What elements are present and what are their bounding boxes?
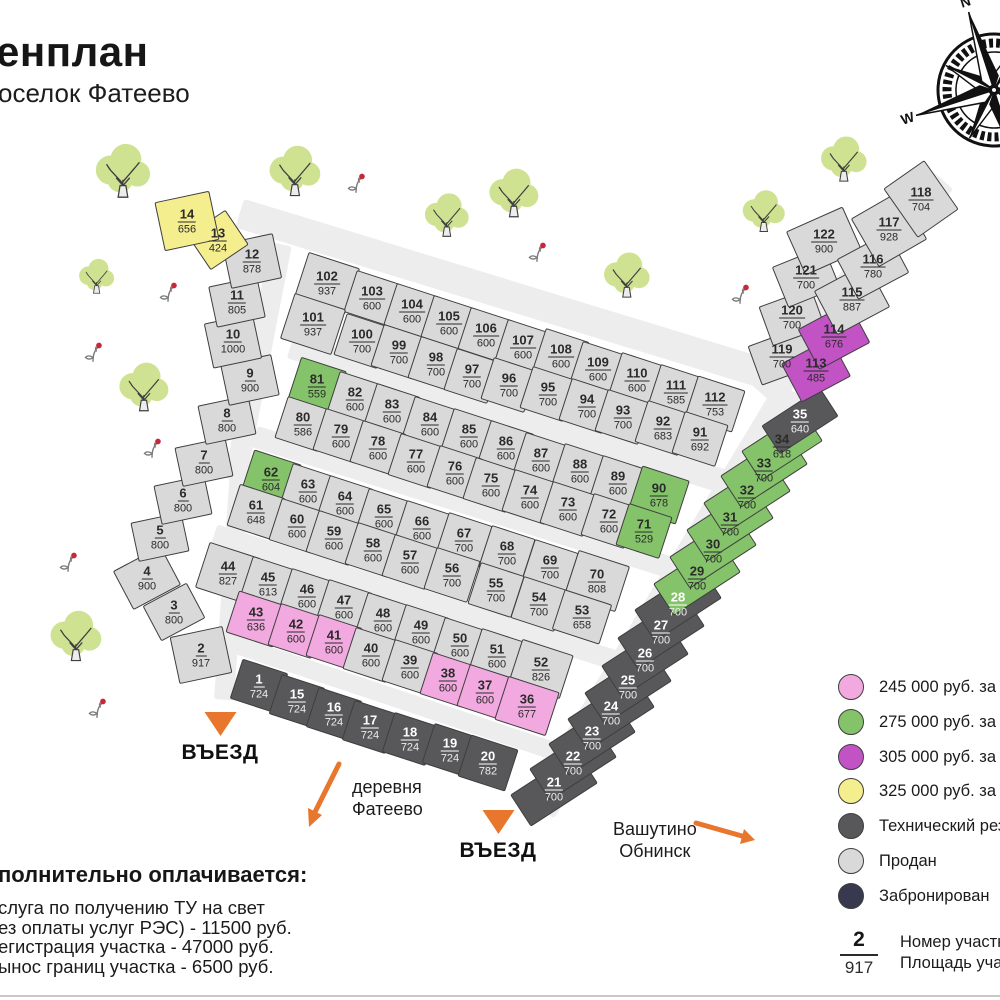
plot-6-label: 6800 xyxy=(174,486,192,515)
entrance-arrow-icon xyxy=(204,712,236,736)
plot-20-label: 20782 xyxy=(479,749,497,778)
plot-49-label: 49600 xyxy=(412,618,430,647)
entrance-1: ВЪЕЗД xyxy=(181,712,258,765)
plot-24-label: 24700 xyxy=(602,699,620,728)
tree-icon xyxy=(265,143,323,201)
plot-36-label: 36677 xyxy=(518,692,536,721)
plot-52-label: 52826 xyxy=(532,655,550,684)
plot-55-label: 55700 xyxy=(487,576,505,605)
plot-111-label: 111585 xyxy=(664,378,688,407)
plot-94-label: 94700 xyxy=(578,392,596,421)
flower-icon xyxy=(139,435,165,461)
plot-8-label: 8800 xyxy=(218,406,236,435)
flower-icon xyxy=(343,170,369,196)
sample-area: 917 xyxy=(840,956,878,978)
direction-arrow-icon xyxy=(690,816,762,852)
tree-icon xyxy=(115,360,171,416)
plot-77-label: 77600 xyxy=(407,447,425,476)
entrance-2-label: ВЪЕЗД xyxy=(459,839,536,863)
plot-51-label: 51600 xyxy=(488,642,506,671)
legend-swatch xyxy=(838,674,864,700)
plot-107-label: 107600 xyxy=(510,333,536,362)
plot-93-label: 93700 xyxy=(614,403,632,432)
plot-29-label: 29700 xyxy=(688,564,706,593)
village-arrow-icon xyxy=(295,758,351,834)
entrance-2: ВЪЕЗД xyxy=(459,810,536,863)
plot-87-label: 87600 xyxy=(532,446,550,475)
plot-114-label: 114676 xyxy=(822,322,847,351)
plot-84-label: 84600 xyxy=(421,410,439,439)
plot-42-label: 42600 xyxy=(287,617,305,646)
plot-65-label: 65600 xyxy=(375,502,393,531)
plot-76-label: 76600 xyxy=(446,459,464,488)
plot-40-label: 40600 xyxy=(362,641,380,670)
plot-53-label: 53658 xyxy=(573,603,591,632)
plot-75-label: 75600 xyxy=(482,471,500,500)
flower-icon xyxy=(155,279,181,305)
plot-18-label: 18724 xyxy=(401,725,419,754)
page-title: енплан xyxy=(0,28,149,76)
legend-item-label: 325 000 руб. за сотку xyxy=(879,782,1000,801)
plot-38-label: 38600 xyxy=(439,666,457,695)
plot-106-label: 106600 xyxy=(473,321,499,350)
compass-n: N xyxy=(958,0,973,11)
legend-item-label: 245 000 руб. за сотку xyxy=(879,678,1000,697)
village-label: деревня Фатеево xyxy=(352,776,423,820)
legend-item-label: Технический резерв xyxy=(879,817,1000,836)
plot-79-label: 79600 xyxy=(332,422,350,451)
legend-item-label: 305 000 руб. за сотку xyxy=(879,748,1000,767)
legend-item: 305 000 руб. за сотку xyxy=(838,744,1000,770)
page-subtitle: оселок Фатеево xyxy=(0,78,190,109)
plot-28-label: 28700 xyxy=(669,590,687,619)
plot-113-label: 113485 xyxy=(804,356,829,385)
plot-23-label: 23700 xyxy=(583,724,601,753)
plot-47-label: 47600 xyxy=(335,593,353,622)
legend-swatch xyxy=(838,848,864,874)
plot-16-label: 16724 xyxy=(325,700,343,729)
plot-89-label: 89600 xyxy=(609,469,627,498)
plot-9-label: 9900 xyxy=(241,366,259,395)
plot-25-label: 25700 xyxy=(619,673,637,702)
plot-101-label: 101937 xyxy=(300,310,326,339)
plot-110-label: 110600 xyxy=(625,366,650,395)
plot-86-label: 86600 xyxy=(497,434,515,463)
plot-81-label: 81559 xyxy=(308,372,326,401)
plot-13-label: 13424 xyxy=(209,226,227,255)
legend-item: Технический резерв xyxy=(838,813,1000,839)
legend-item: Продан xyxy=(838,848,937,874)
plot-103-label: 103600 xyxy=(359,284,385,313)
plot-56-label: 56700 xyxy=(443,561,461,590)
plot-72-label: 72600 xyxy=(600,507,618,536)
plot-59-label: 59600 xyxy=(325,524,343,553)
plot-3-label: 3800 xyxy=(165,598,183,627)
plot-80-label: 80586 xyxy=(294,410,312,439)
flower-icon xyxy=(80,339,106,365)
plot-50-label: 50600 xyxy=(451,631,469,660)
plot-32-label: 32700 xyxy=(738,483,756,512)
plot-12-label: 12878 xyxy=(243,247,261,276)
plot-45-label: 45613 xyxy=(259,570,277,599)
plot-31-label: 31700 xyxy=(721,510,739,539)
tree-icon xyxy=(739,188,787,236)
sample-fraction: 2 917 xyxy=(840,928,878,978)
legend-swatch xyxy=(838,744,864,770)
sample-number: 2 xyxy=(840,928,878,956)
tree-icon xyxy=(600,250,652,302)
plot-95-label: 95700 xyxy=(539,380,557,409)
legend-swatch xyxy=(838,709,864,735)
sample-caption: Номер участка Площадь участка xyxy=(900,932,1000,974)
plot-73-label: 73600 xyxy=(559,495,577,524)
plot-37-label: 37600 xyxy=(476,678,494,707)
plot-4-label: 4900 xyxy=(138,564,156,593)
plot-90-label: 90678 xyxy=(650,481,668,510)
plot-14-label: 14656 xyxy=(178,207,196,236)
direction-label: Вашутино Обнинск xyxy=(613,818,697,862)
plot-116-label: 116780 xyxy=(861,252,886,281)
plot-104-label: 104600 xyxy=(399,297,425,326)
flower-icon xyxy=(727,281,753,307)
flower-icon xyxy=(84,695,110,721)
plot-35-label: 35640 xyxy=(791,407,809,436)
plot-117-label: 117928 xyxy=(877,215,902,244)
plot-83-label: 83600 xyxy=(383,397,401,426)
plot-64-label: 64600 xyxy=(336,489,354,518)
extras-block: полнительно оплачивается: слуга по получ… xyxy=(0,862,307,976)
legend-item: 245 000 руб. за сотку xyxy=(838,674,1000,700)
legend-item: 275 000 руб. за сотку xyxy=(838,709,1000,735)
legend-sample: 2 917 Номер участка Площадь участка xyxy=(840,928,1000,978)
plot-91-label: 91692 xyxy=(691,425,709,454)
plot-71-label: 71529 xyxy=(635,517,653,546)
plot-62-label: 62604 xyxy=(262,465,280,494)
plot-69-label: 69700 xyxy=(541,553,559,582)
legend-swatch xyxy=(838,883,864,909)
flower-icon xyxy=(55,549,81,575)
tree-icon xyxy=(46,608,104,666)
plot-112-label: 112753 xyxy=(703,390,728,419)
tree-icon xyxy=(817,134,869,186)
plot-100-label: 100700 xyxy=(349,327,375,356)
legend-item-label: Продан xyxy=(879,852,937,871)
plot-15-label: 15724 xyxy=(288,687,306,716)
plot-68-label: 68700 xyxy=(498,539,516,568)
legend-item-label: Забронирован xyxy=(879,887,990,906)
entrance-arrow-icon xyxy=(482,810,514,834)
plot-120-label: 120700 xyxy=(779,303,805,332)
plot-54-label: 54700 xyxy=(530,590,548,619)
plot-41-label: 41600 xyxy=(325,628,343,657)
plot-46-label: 46600 xyxy=(298,582,316,611)
plot-66-label: 66600 xyxy=(413,514,431,543)
plot-43-label: 43636 xyxy=(247,605,265,634)
plot-115-label: 115887 xyxy=(840,285,865,314)
plot-22-label: 22700 xyxy=(564,749,582,778)
plot-97-label: 97700 xyxy=(463,362,481,391)
plot-39-label: 39600 xyxy=(401,653,419,682)
tree-icon xyxy=(91,141,153,203)
plot-121-label: 121700 xyxy=(793,263,819,292)
legend-swatch xyxy=(838,778,864,804)
legend-item: Забронирован xyxy=(838,883,990,909)
genplan-canvas: енплан оселок Фатеево N E S W 2917380049… xyxy=(0,0,1000,1000)
tree-icon xyxy=(421,191,471,241)
plot-21-label: 21700 xyxy=(545,775,563,804)
plot-58-label: 58600 xyxy=(364,536,382,565)
legend-swatch xyxy=(838,813,864,839)
extras-line: егистрация участка - 47000 руб. xyxy=(0,937,307,957)
legend-item: 325 000 руб. за сотку xyxy=(838,778,1000,804)
plot-10-label: 101000 xyxy=(221,327,245,356)
plot-102-label: 102937 xyxy=(314,269,340,298)
plot-1-label: 1724 xyxy=(250,672,268,701)
extras-line: слуга по получению ТУ на свет xyxy=(0,898,307,918)
compass-icon: N E S W xyxy=(868,0,1000,216)
plot-11-label: 11805 xyxy=(228,288,246,317)
plot-92-label: 92683 xyxy=(654,414,672,443)
plot-17-label: 17724 xyxy=(361,713,379,742)
extras-line: ез оплаты услуг РЭС) - 11500 руб. xyxy=(0,918,307,938)
plot-19-label: 19724 xyxy=(441,736,459,765)
plot-109-label: 109600 xyxy=(585,355,611,384)
plot-82-label: 82600 xyxy=(346,385,364,414)
plot-57-label: 57600 xyxy=(401,548,419,577)
plot-74-label: 74600 xyxy=(521,483,539,512)
plot-26-label: 26700 xyxy=(636,646,654,675)
plot-61-label: 61648 xyxy=(247,498,265,527)
plot-108-label: 108600 xyxy=(548,342,574,371)
plot-2-label: 2917 xyxy=(192,641,210,670)
plot-27-label: 27700 xyxy=(652,618,670,647)
plot-60-label: 60600 xyxy=(288,512,306,541)
extras-heading: полнительно оплачивается: xyxy=(0,862,307,888)
bottom-divider xyxy=(0,995,1000,997)
plot-34-label: 34618 xyxy=(773,432,791,461)
plot-44-label: 44827 xyxy=(219,559,237,588)
tree-icon xyxy=(485,166,541,222)
plot-7-label: 7800 xyxy=(195,448,213,477)
tree-icon xyxy=(76,257,116,297)
flower-icon xyxy=(524,239,550,265)
plot-96-label: 96700 xyxy=(500,371,518,400)
plot-88-label: 88600 xyxy=(571,457,589,486)
plot-5-label: 5800 xyxy=(151,523,169,552)
plot-63-label: 63600 xyxy=(299,477,317,506)
plot-85-label: 85600 xyxy=(460,422,478,451)
plot-105-label: 105600 xyxy=(436,309,462,338)
compass-w: W xyxy=(899,108,917,128)
plot-122-label: 122900 xyxy=(811,227,837,256)
legend-item-label: 275 000 руб. за сотку xyxy=(879,713,1000,732)
plot-67-label: 67700 xyxy=(455,526,473,555)
extras-line: ынос границ участка - 6500 руб. xyxy=(0,957,307,977)
plot-30-label: 30700 xyxy=(704,537,722,566)
plot-33-label: 33700 xyxy=(755,456,773,485)
plot-119-label: 119700 xyxy=(770,342,795,371)
plot-98-label: 98700 xyxy=(427,350,445,379)
plot-48-label: 48600 xyxy=(374,606,392,635)
entrance-1-label: ВЪЕЗД xyxy=(181,741,258,765)
plot-70-label: 70808 xyxy=(588,567,606,596)
plot-78-label: 78600 xyxy=(369,434,387,463)
plot-99-label: 99700 xyxy=(390,338,408,367)
